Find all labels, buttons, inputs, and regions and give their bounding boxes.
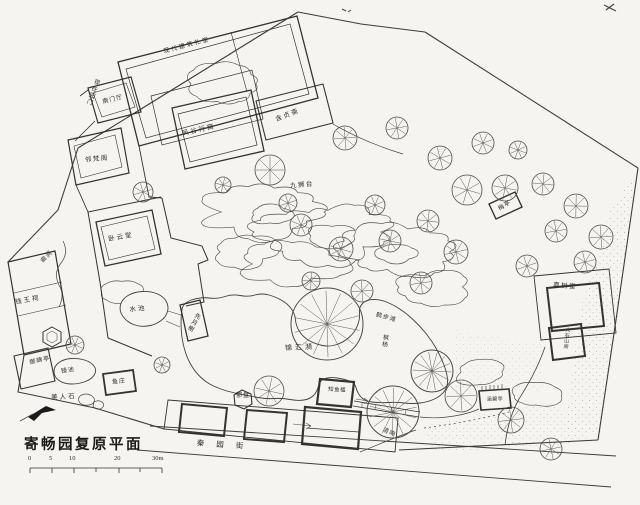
- tree-icon: [509, 141, 527, 159]
- connecting-walls: [76, 146, 162, 212]
- ink-bird-mark: [28, 406, 56, 421]
- modern-compound-partition: [231, 32, 247, 92]
- south-range-hall-c-bay: [307, 428, 359, 432]
- tree-icon: [365, 195, 385, 215]
- scale-tick-5: 5: [49, 455, 52, 462]
- scale-tick-30: 30m: [152, 455, 164, 462]
- tree-icon: [154, 357, 170, 373]
- tree-icon: [532, 173, 554, 195]
- tree-icon: [379, 230, 401, 252]
- tree-icon: [574, 251, 596, 273]
- tree-icon: [545, 220, 567, 242]
- tree-icon: [444, 240, 468, 264]
- woyun-tang-hall: [96, 210, 161, 266]
- scale-tick-10: 10: [69, 455, 76, 462]
- woyun-tang-inner: [101, 216, 155, 260]
- garden-plan-scan: 现代建筑礼堂现在园门南门厅凤谷行窝邻梵阁含贞斋九狮台梅亭卧云堂曲涧钱王祠水池先月…: [0, 0, 640, 505]
- jing-chi-pond: [54, 358, 96, 384]
- zhiyu-jian-pavilion: [317, 379, 354, 407]
- tree-icon: [255, 155, 285, 185]
- linfan-ge-inner: [74, 135, 122, 178]
- top-ink-specks: [342, 9, 351, 12]
- scale-tick-0: 0: [28, 455, 31, 462]
- jinhui-yi-pond: [181, 294, 448, 404]
- rockery-outline: [396, 270, 468, 306]
- rockery-outline: [187, 62, 257, 104]
- tree-icon: [516, 255, 538, 277]
- plan-title: 寄畅园复原平面: [24, 433, 143, 454]
- tree-icon: [452, 175, 482, 205]
- qianwang-ci-annex: [14, 348, 55, 389]
- yu-zhuang-building: [103, 370, 136, 395]
- gate-walls: [75, 90, 95, 141]
- tree-icon: [417, 210, 439, 232]
- yubei-ting-pavilion: [43, 327, 61, 347]
- modern-compound-court: [151, 70, 263, 145]
- tree-icon: [564, 194, 588, 218]
- south-gate-hall-building: [88, 77, 141, 123]
- tree-icon: [302, 272, 320, 290]
- modern-compound-inner-wall: [126, 24, 309, 138]
- tree-icon: [333, 126, 357, 150]
- pond-channel: [166, 311, 181, 327]
- south-gate-hall-inner: [93, 83, 135, 117]
- tree-icon: [215, 177, 231, 193]
- rockery-outline: [215, 235, 282, 270]
- qianwang-ci-building: [8, 251, 71, 355]
- tree-icon: [133, 182, 153, 202]
- tree-icon: [472, 132, 494, 154]
- qu-jian-stream: [56, 241, 65, 307]
- tree-icon: [386, 117, 408, 139]
- scale-bar: 0 5 10 20 30m: [22, 454, 174, 480]
- tree-icon: [290, 214, 312, 236]
- tree-icon: [351, 280, 373, 302]
- path-to-hanbi-ting: [420, 409, 479, 418]
- modern-compound-outer-wall: [118, 16, 318, 146]
- mei-ting-pavilion: [489, 192, 522, 219]
- garden-plan-linework: [0, 0, 640, 505]
- fenggu-xingwo-inner: [178, 97, 257, 162]
- rockery-outline: [247, 204, 394, 267]
- yubei-ting-roof: [47, 331, 57, 343]
- qianwang-ci-bays: [14, 282, 66, 316]
- tree-icon: [428, 146, 452, 170]
- north-garden-path: [333, 124, 403, 154]
- corner-ink-specks: [604, 4, 616, 11]
- shui-chi-pond: [120, 291, 168, 326]
- scale-tick-20: 20: [114, 455, 121, 462]
